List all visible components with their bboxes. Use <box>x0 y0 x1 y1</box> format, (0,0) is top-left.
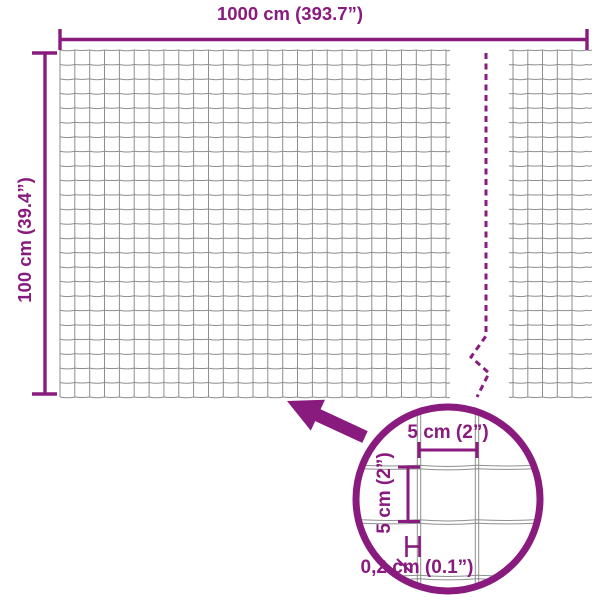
height-dimension: 100 cm (39.4”) <box>14 53 57 394</box>
fence-dimension-diagram: 1000 cm (393.7”) 100 cm (39.4”) 5 cm (2”… <box>0 0 600 600</box>
detail-cell-height-label: 5 cm (2”) <box>374 452 395 533</box>
zoom-arrow-icon <box>287 400 368 443</box>
wire-mesh-panel-main <box>60 50 450 398</box>
mesh-break-dashed-line <box>471 53 489 397</box>
wire-thickness-label: 0,2 cm (0.1”) <box>361 557 474 578</box>
diagram-canvas: 1000 cm (393.7”) 100 cm (39.4”) 5 cm (2”… <box>0 0 600 600</box>
width-dimension: 1000 cm (393.7”) <box>60 3 587 50</box>
wire-mesh-panel-continuation <box>509 50 592 398</box>
width-dimension-label: 1000 cm (393.7”) <box>217 3 363 24</box>
detail-cell-width-label: 5 cm (2”) <box>407 422 488 443</box>
detail-magnifier: 5 cm (2”) 5 cm (2”) 0,2 cm (0.1”) <box>353 403 543 596</box>
height-dimension-label: 100 cm (39.4”) <box>14 177 35 302</box>
